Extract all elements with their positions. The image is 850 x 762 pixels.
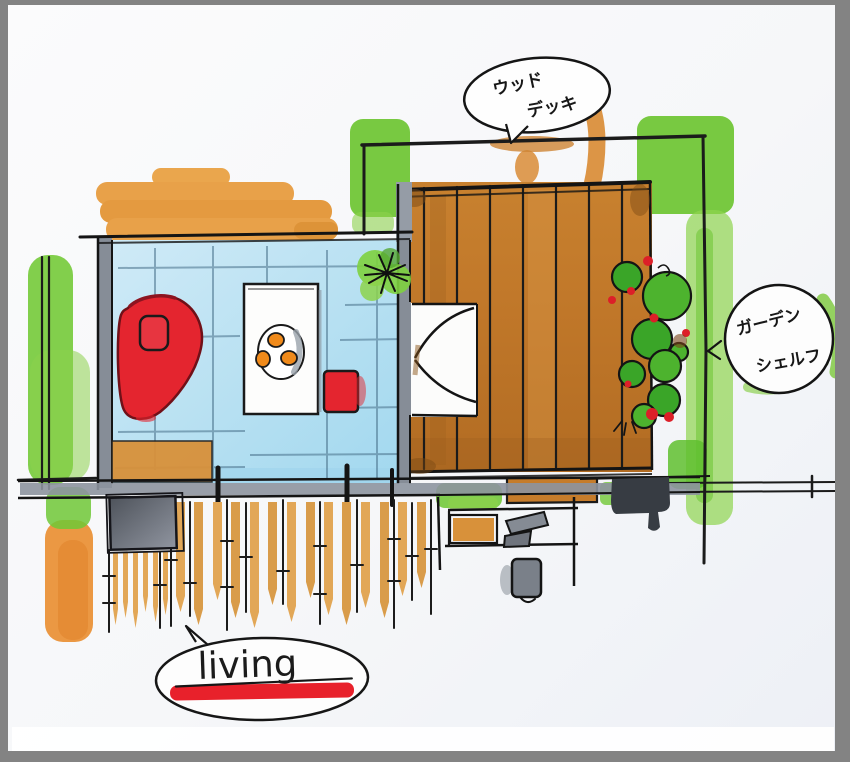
paper-edge-highlight bbox=[12, 727, 834, 752]
tv-board bbox=[106, 493, 183, 553]
orange-marker-wash-left-band bbox=[45, 520, 93, 642]
deck-light-streak bbox=[528, 190, 556, 468]
mat bbox=[453, 518, 494, 541]
photo-frame: ウッド デッキ ガーデン シェルフ living bbox=[0, 0, 850, 762]
floorplan-sketch: ウッド デッキ ガーデン シェルフ living bbox=[0, 0, 850, 762]
label-living: living bbox=[197, 642, 298, 688]
coffee-table bbox=[244, 284, 320, 414]
rug bbox=[112, 441, 212, 482]
floor-cushion bbox=[324, 371, 366, 412]
slipper bbox=[504, 531, 531, 547]
slipper bbox=[506, 512, 548, 534]
stool bbox=[500, 559, 541, 602]
fruit bbox=[268, 333, 284, 347]
bubble-spike bbox=[186, 626, 208, 645]
living-label-bubble: living bbox=[155, 626, 368, 722]
fruit bbox=[281, 351, 297, 365]
fruit bbox=[256, 351, 270, 367]
sofa-cushion bbox=[140, 316, 168, 350]
orange-marker-wash-top-left bbox=[96, 168, 338, 241]
double-door-symbol bbox=[410, 303, 477, 417]
